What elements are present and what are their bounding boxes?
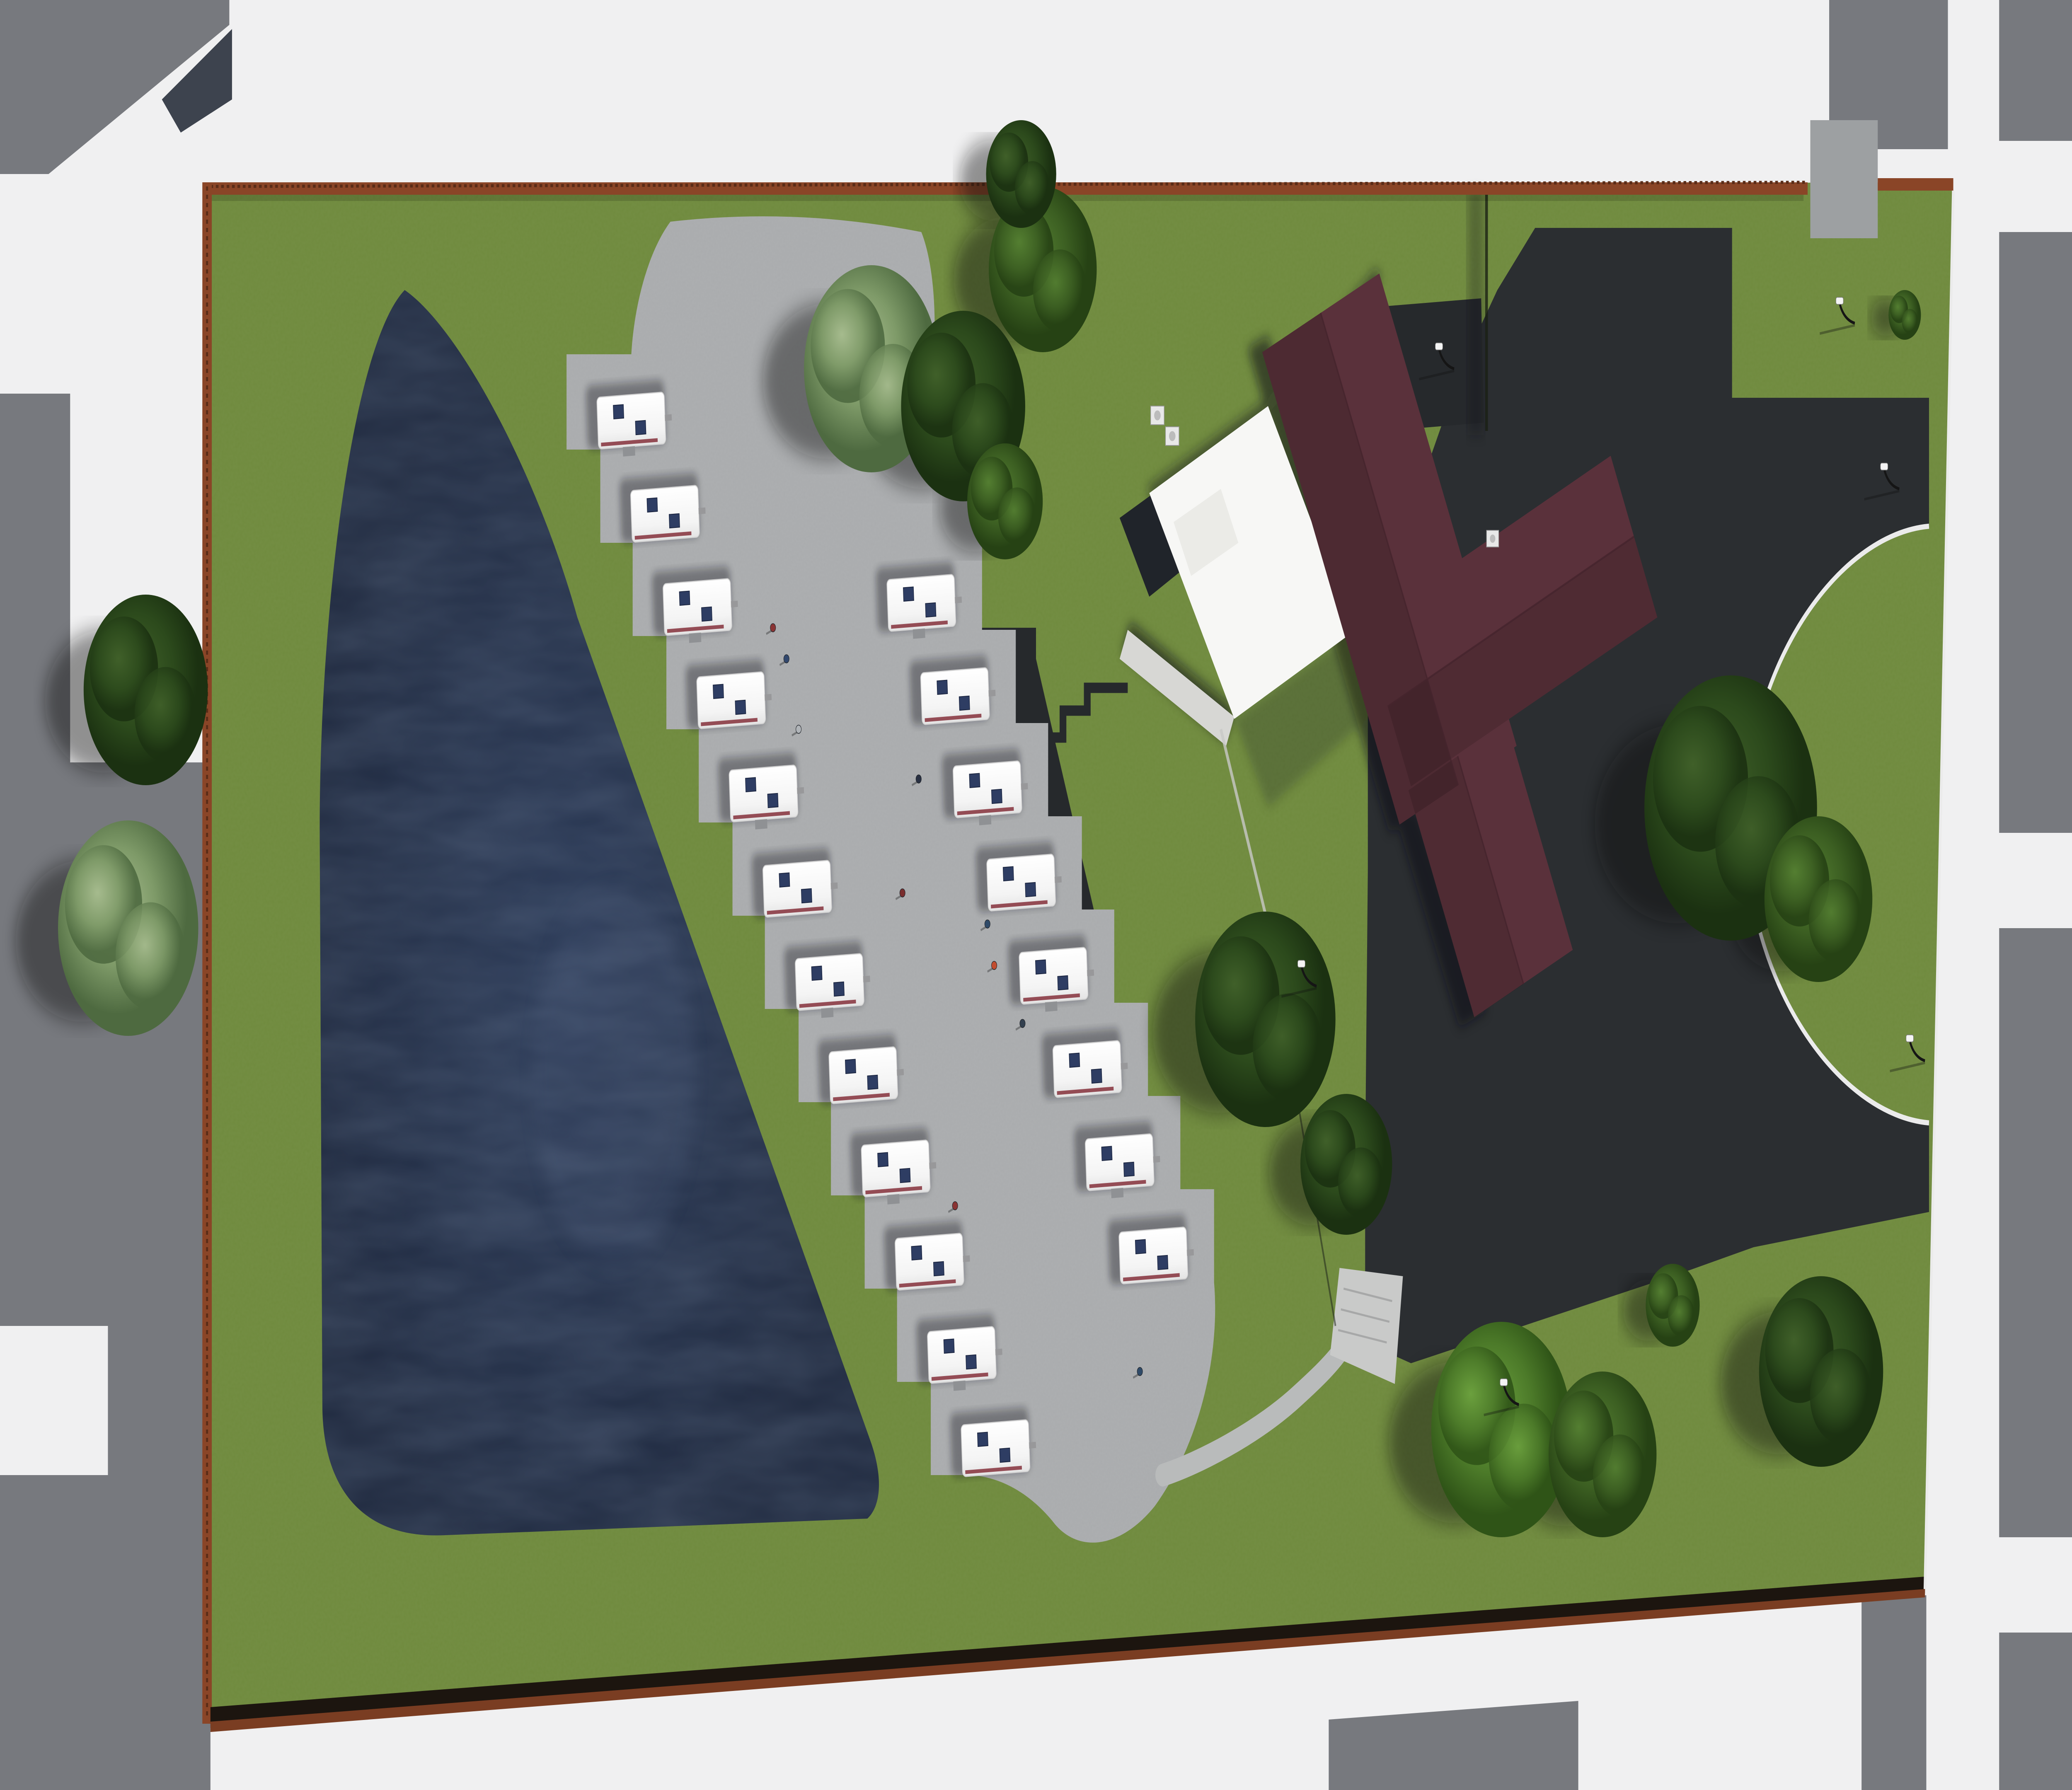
caravan-skylight — [713, 684, 724, 698]
tree-canopy-lobe — [1015, 161, 1050, 215]
tree-canopy-lobe — [998, 487, 1036, 545]
tree-canopy-lobe — [135, 667, 197, 762]
caravan-hitch — [955, 597, 962, 603]
caravan-skylight — [767, 793, 778, 808]
caravan-steps — [913, 629, 925, 639]
lamp-head — [1836, 298, 1843, 305]
tree-canopy-lobe — [1033, 249, 1087, 332]
caravan-steps — [755, 819, 767, 830]
plot-east-4 — [1999, 1633, 2072, 1790]
caravan-hitch — [665, 414, 672, 421]
tree-canopy-lobe — [1668, 1295, 1695, 1337]
person-figure — [770, 624, 776, 632]
caravan-skylight — [635, 421, 646, 435]
caravan-hitch — [963, 1255, 970, 1262]
plot-east-3 — [1999, 928, 2072, 1537]
caravan-skylight — [900, 1168, 910, 1183]
caravan — [751, 847, 838, 918]
caravan-skylight — [944, 1339, 954, 1353]
caravan-skylight — [1124, 1162, 1134, 1176]
plot-east-1 — [1999, 0, 2072, 141]
person-figure — [1020, 1019, 1025, 1028]
caravan-hitch — [1153, 1156, 1160, 1163]
person-figure — [952, 1202, 958, 1210]
caravan-hitch — [1087, 970, 1094, 976]
plot-west-lower-a — [108, 1326, 206, 1475]
caravan-steps — [821, 1008, 833, 1018]
caravan-skylight — [845, 1059, 856, 1073]
caravan-skylight — [801, 889, 812, 903]
person-figure — [985, 920, 990, 928]
caravan-skylight — [1069, 1053, 1080, 1067]
person-figure — [916, 775, 921, 783]
person-figure — [1137, 1367, 1143, 1376]
caravan-hitch — [1029, 1442, 1036, 1449]
caravan-skylight — [959, 696, 970, 710]
lamp-head — [1500, 1379, 1508, 1386]
person-figure — [992, 961, 997, 970]
caravan-skylight — [1003, 866, 1014, 880]
caravan-hitch — [1021, 783, 1028, 790]
hedge-shadow — [1468, 191, 1484, 435]
caravan-skylight — [969, 773, 980, 787]
person-figure — [796, 725, 801, 733]
tree-dark — [986, 120, 1056, 228]
tree-canopy-lobe — [1253, 994, 1323, 1101]
caravan-steps — [887, 1194, 900, 1205]
caravan — [975, 841, 1063, 912]
tree-canopy-lobe — [1338, 1147, 1384, 1218]
caravan-steps — [1045, 1001, 1058, 1012]
caravan-skylight — [1058, 976, 1068, 990]
caravan-hitch — [797, 787, 804, 794]
caravan-hitch — [831, 883, 838, 889]
caravan-skylight — [679, 591, 690, 605]
caravan-skylight — [647, 498, 657, 512]
tree-canopy-lobe — [1593, 1434, 1647, 1517]
fence-north-b — [1878, 178, 1953, 191]
tree-dark — [84, 595, 208, 785]
tree-pale — [58, 820, 198, 1036]
caravan — [1108, 1214, 1195, 1285]
caravan-skylight — [669, 514, 680, 528]
caravan-hitch — [863, 976, 870, 982]
plot-south-east — [1861, 1595, 1926, 1790]
caravan — [619, 472, 706, 543]
tree-canopy-lobe — [116, 902, 186, 1010]
lamp-head — [1435, 343, 1443, 350]
caravan-skylight — [867, 1075, 878, 1089]
caravan-skylight — [966, 1355, 976, 1369]
caravan-hitch — [699, 508, 706, 514]
caravan-skylight — [978, 1432, 988, 1446]
tree-mid — [1646, 1264, 1699, 1347]
caravan-hitch — [989, 690, 996, 697]
tree-dark — [1759, 1276, 1883, 1467]
tree-mid — [1888, 290, 1921, 340]
tree-dark — [1300, 1094, 1392, 1235]
caravan-steps — [979, 815, 991, 825]
caravan-skylight — [1135, 1239, 1146, 1253]
lamp-head — [1298, 960, 1305, 968]
plot-east-2 — [1999, 232, 2072, 833]
caravan-skylight — [1101, 1146, 1112, 1160]
caravan-skylight — [934, 1262, 944, 1276]
caravan-steps — [623, 446, 635, 457]
lamp-head — [1906, 1035, 1914, 1042]
caravan-skylight — [1092, 1069, 1102, 1083]
caravan-skylight — [1000, 1448, 1010, 1462]
tree-mid — [1765, 816, 1872, 982]
caravan-hitch — [1121, 1063, 1128, 1069]
caravan-skylight — [878, 1152, 888, 1166]
lamp-head — [1881, 463, 1888, 470]
caravan-skylight — [1036, 960, 1046, 974]
plot-west-lower-b — [0, 1475, 211, 1790]
site-plan-render — [0, 0, 2072, 1790]
caravan-skylight — [735, 700, 746, 714]
caravan-skylight — [937, 680, 947, 694]
caravan-skylight — [925, 603, 936, 617]
caravan-skylight — [903, 587, 914, 601]
caravan-skylight — [746, 777, 756, 791]
caravan-skylight — [911, 1246, 922, 1260]
caravan — [909, 655, 996, 726]
caravan-steps — [953, 1381, 966, 1391]
tree-dark — [1195, 912, 1336, 1127]
caravan-skylight — [779, 873, 789, 887]
caravan — [950, 1407, 1037, 1478]
pond-highlight — [533, 891, 695, 1264]
caravan-skylight — [613, 404, 624, 418]
caravan-hitch — [995, 1349, 1002, 1355]
tree-mid — [967, 443, 1043, 559]
caravan-steps — [689, 633, 701, 643]
caravan-hitch — [929, 1162, 936, 1169]
caravan-steps — [1111, 1188, 1123, 1198]
north-driveway — [1810, 120, 1878, 238]
caravan — [884, 1220, 971, 1291]
caravan-skylight — [1157, 1255, 1168, 1270]
caravan-skylight — [1025, 883, 1036, 897]
caravan-skylight — [702, 607, 712, 621]
caravan — [1041, 1028, 1128, 1098]
street-west-corner — [0, 1326, 108, 1475]
caravan-skylight — [992, 789, 1002, 803]
caravan-hitch — [765, 694, 772, 701]
tree-mid — [1549, 1372, 1656, 1537]
tree-canopy-lobe — [1810, 1349, 1872, 1444]
caravan-hitch — [731, 601, 738, 607]
person-figure — [900, 889, 905, 897]
tree-canopy-lobe — [1809, 879, 1863, 962]
person-figure — [784, 655, 789, 663]
tree-bright — [1431, 1322, 1572, 1537]
site — [16, 120, 1953, 1732]
caravan — [685, 659, 772, 730]
caravan — [818, 1034, 905, 1105]
caravan-skylight — [834, 982, 844, 996]
caravan-hitch — [1187, 1249, 1194, 1256]
tree-canopy-lobe — [1902, 309, 1918, 334]
caravan-skylight — [811, 966, 822, 980]
caravan-hitch — [1055, 876, 1062, 883]
tree-canopy-lobe — [1489, 1404, 1559, 1512]
caravan-hitch — [897, 1069, 904, 1076]
